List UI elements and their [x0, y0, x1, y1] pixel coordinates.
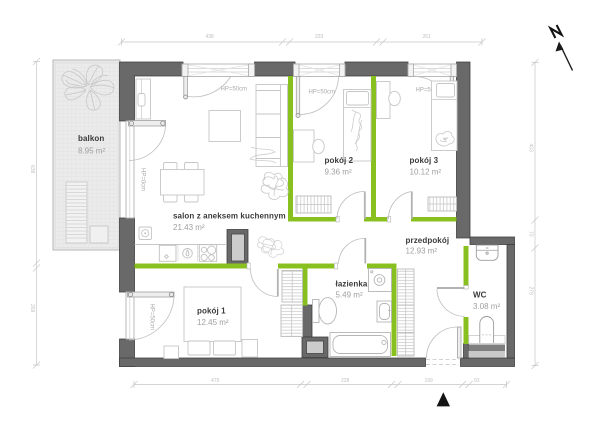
svg-text:403: 403: [528, 144, 534, 153]
svg-text:pokój 1: pokój 1: [197, 307, 226, 316]
svg-text:261: 261: [423, 34, 432, 40]
svg-text:pokój 3: pokój 3: [410, 156, 439, 165]
svg-text:638: 638: [29, 165, 35, 174]
svg-text:balkon: balkon: [78, 134, 104, 143]
svg-text:8.95 m²: 8.95 m²: [78, 147, 105, 156]
svg-text:3.08 m²: 3.08 m²: [473, 302, 500, 311]
svg-text:salon z aneksem kuchennym: salon z aneksem kuchennym: [173, 212, 286, 221]
svg-text:HP=50cm: HP=50cm: [309, 90, 336, 96]
svg-text:269: 269: [29, 304, 35, 313]
svg-text:pokój 2: pokój 2: [325, 156, 354, 165]
svg-text:279: 279: [528, 287, 534, 296]
svg-text:93: 93: [474, 378, 480, 384]
svg-text:HP=50cm: HP=50cm: [149, 304, 155, 331]
svg-text:479: 479: [211, 378, 220, 384]
svg-text:12.93 m²: 12.93 m²: [406, 247, 438, 256]
svg-text:przedpokój: przedpokój: [406, 236, 450, 245]
svg-text:łazienka: łazienka: [336, 280, 368, 289]
svg-text:HP=50cm: HP=50cm: [221, 87, 248, 93]
svg-text:233: 233: [315, 34, 324, 40]
svg-text:70: 70: [528, 231, 534, 237]
svg-text:WC: WC: [473, 291, 487, 300]
svg-text:21.43 m²: 21.43 m²: [173, 223, 205, 232]
svg-text:438: 438: [206, 34, 215, 40]
svg-text:5.49 m²: 5.49 m²: [336, 291, 363, 300]
svg-text:HP=0cm: HP=0cm: [140, 168, 146, 191]
svg-text:228: 228: [341, 378, 350, 384]
svg-text:9.36 m²: 9.36 m²: [325, 168, 352, 177]
svg-text:199: 199: [425, 378, 434, 384]
svg-text:10.12 m²: 10.12 m²: [410, 168, 442, 177]
svg-text:12.45 m²: 12.45 m²: [197, 318, 229, 327]
